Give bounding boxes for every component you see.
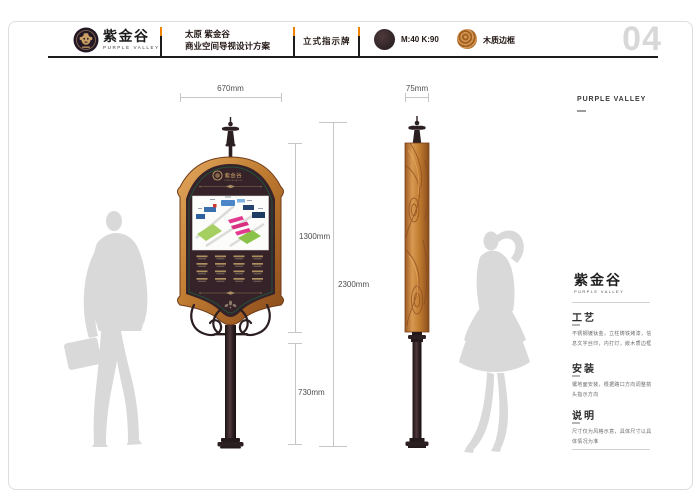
dim-panel-height-label: 1300mm bbox=[299, 232, 330, 241]
section-title-craft: 工艺 bbox=[572, 309, 596, 324]
wood-plank-side bbox=[405, 143, 429, 332]
dim-front-width-line bbox=[180, 97, 281, 98]
pole-base-front bbox=[218, 438, 244, 449]
dim-tick bbox=[428, 93, 429, 102]
pole-base-side bbox=[406, 438, 429, 448]
dim-total-height-label: 2300mm bbox=[338, 280, 369, 289]
dim-side-width-line bbox=[405, 97, 429, 98]
section-body-craft: 不锈钢镀钛金，立柱铸铁烤漆，信息文字丝印，内打灯，嵌木质边框 bbox=[572, 329, 652, 349]
dim-tick bbox=[288, 444, 302, 445]
dash-divider bbox=[572, 324, 580, 326]
info-separator bbox=[572, 302, 650, 303]
info-logo-cn: 紫金谷 bbox=[574, 273, 624, 288]
pole-front bbox=[225, 325, 236, 441]
dim-tick bbox=[405, 93, 406, 102]
side-view-sign bbox=[405, 116, 429, 448]
dim-total-height-line bbox=[333, 122, 334, 447]
brand-en-top: PURPLE VALLEY bbox=[577, 96, 646, 103]
dim-tick bbox=[288, 332, 302, 333]
section-body-install: 镶地面安装，根据路口方向调整箭头指示方向 bbox=[572, 380, 652, 400]
dim-tick bbox=[180, 93, 181, 102]
dim-tick bbox=[319, 122, 347, 123]
dim-side-width-label: 75mm bbox=[405, 84, 429, 93]
section-title-note: 说明 bbox=[572, 407, 596, 422]
dim-tick bbox=[281, 93, 282, 102]
dim-tick bbox=[288, 343, 302, 344]
info-logo: 紫金谷 PURPLE VALLEY bbox=[574, 273, 624, 294]
dim-pole-height-line bbox=[295, 343, 296, 445]
pole-side bbox=[413, 342, 422, 438]
panel-logo-en: PURPLE VALLEY bbox=[225, 179, 244, 182]
site-map-panel bbox=[193, 196, 269, 250]
dash-divider bbox=[572, 422, 580, 424]
female-silhouette bbox=[459, 230, 530, 453]
male-silhouette bbox=[63, 211, 147, 447]
panel-logo-cn: 紫金谷 bbox=[225, 172, 243, 180]
dim-front-width-label: 670mm bbox=[178, 84, 283, 93]
dim-pole-height-label: 730mm bbox=[298, 388, 325, 397]
dash-divider bbox=[577, 110, 586, 112]
dim-panel-height-line bbox=[295, 143, 296, 333]
finial-ornament-icon bbox=[408, 116, 425, 145]
finial-ornament-icon bbox=[222, 117, 239, 146]
pole-collar-side bbox=[408, 332, 426, 342]
section-body-note: 尺寸仅为风格示意，具体尺寸以具体情况为准 bbox=[572, 427, 652, 447]
dim-tick bbox=[319, 446, 347, 447]
dim-tick bbox=[288, 143, 302, 144]
info-logo-en: PURPLE VALLEY bbox=[574, 289, 624, 294]
design-sheet: 紫金谷 PURPLE VALLEY 太原 紫金谷 商业空间导视设计方案 立式指示… bbox=[0, 0, 700, 495]
dash-divider bbox=[572, 375, 580, 377]
front-view-sign: 紫金谷 PURPLE VALLEY bbox=[178, 117, 284, 449]
info-bottom-rule bbox=[572, 449, 650, 450]
section-title-install: 安装 bbox=[572, 360, 596, 375]
